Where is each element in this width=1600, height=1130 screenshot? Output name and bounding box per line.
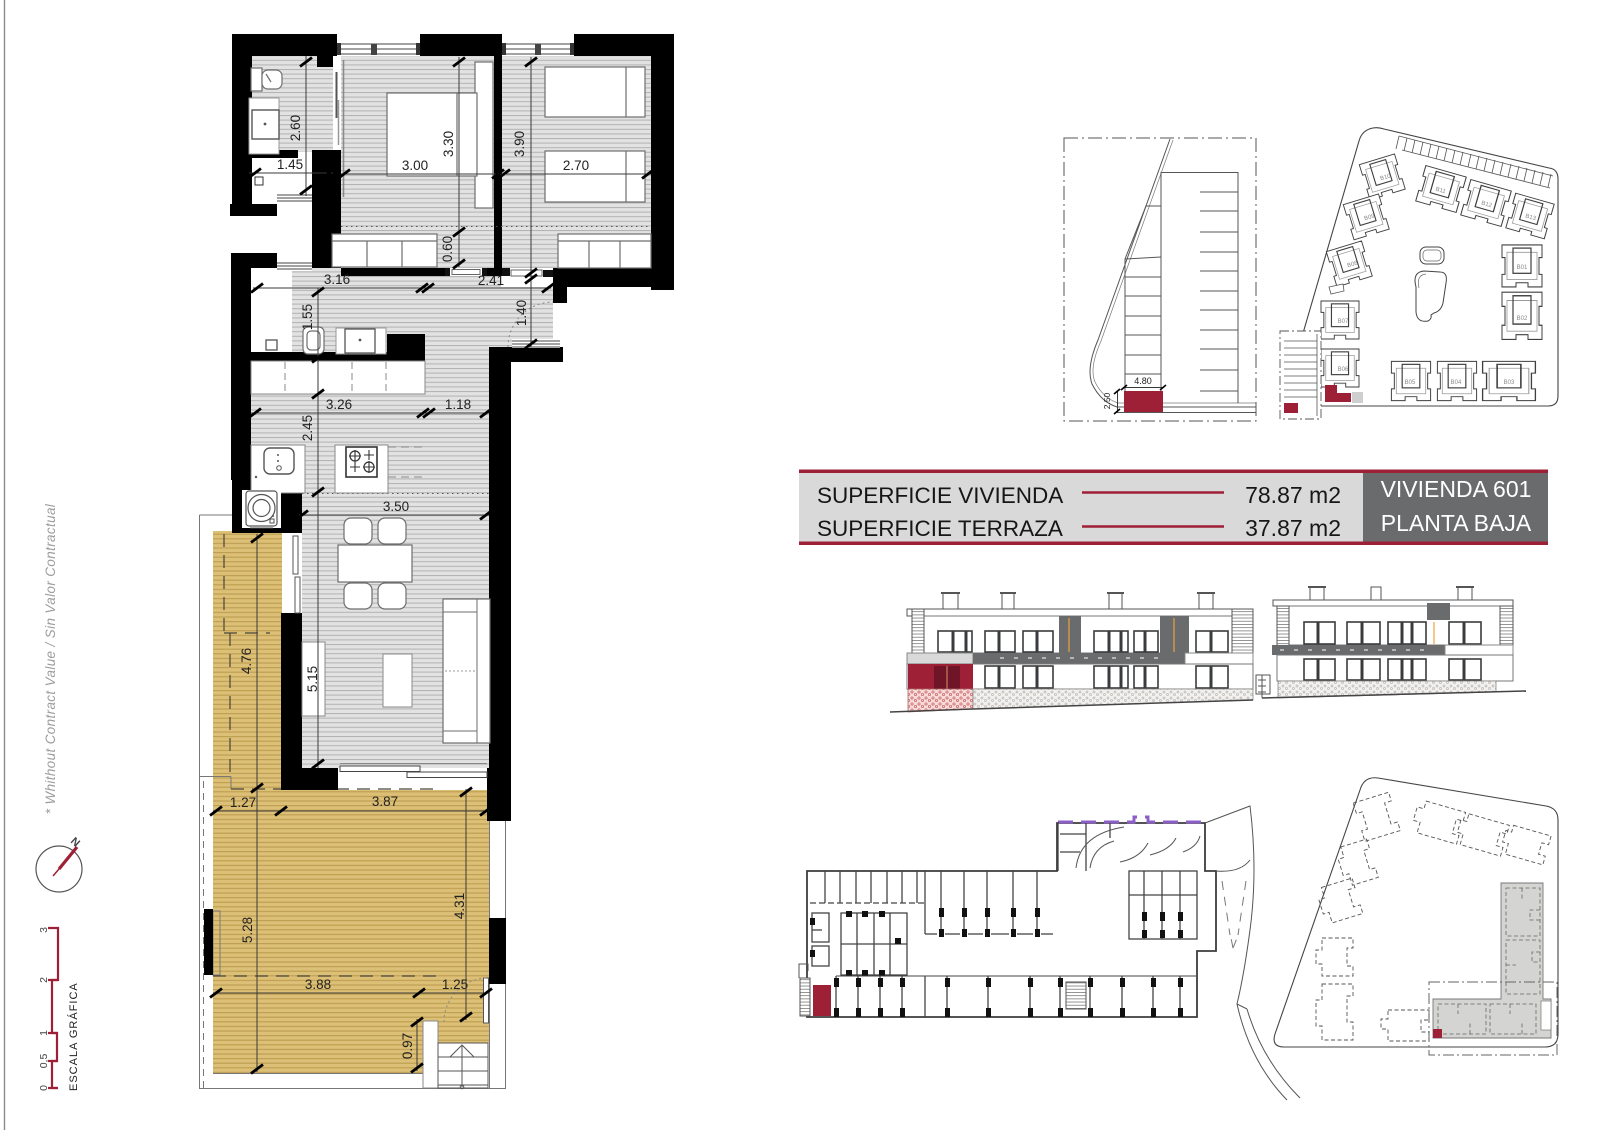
svg-text:1.40: 1.40 <box>514 300 529 326</box>
svg-text:1.18: 1.18 <box>445 397 471 412</box>
svg-text:2.70: 2.70 <box>563 158 589 173</box>
svg-text:2.50: 2.50 <box>1102 392 1112 409</box>
svg-text:1: 1 <box>38 1030 50 1036</box>
svg-text:B01: B01 <box>1517 265 1528 271</box>
svg-text:3.16: 3.16 <box>324 272 350 287</box>
svg-text:1.25: 1.25 <box>442 977 468 992</box>
svg-text:0.60: 0.60 <box>440 236 455 262</box>
svg-text:* Whithout Contract Value / Si: * Whithout Contract Value / Sin Valor Co… <box>43 503 58 814</box>
svg-text:0: 0 <box>38 1085 50 1091</box>
svg-text:3.90: 3.90 <box>512 131 527 157</box>
svg-text:3.30: 3.30 <box>441 131 456 157</box>
svg-text:3.00: 3.00 <box>402 158 428 173</box>
svg-text:3.50: 3.50 <box>383 499 409 514</box>
svg-text:3: 3 <box>38 927 50 933</box>
svg-text:PLANTA BAJA: PLANTA BAJA <box>1381 510 1532 536</box>
svg-text:SUPERFICIE VIVIENDA: SUPERFICIE VIVIENDA <box>817 483 1063 508</box>
svg-text:37.87 m2: 37.87 m2 <box>1245 515 1341 541</box>
svg-text:1.55: 1.55 <box>300 304 315 330</box>
svg-text:78.87 m2: 78.87 m2 <box>1245 482 1341 508</box>
svg-text:1.45: 1.45 <box>277 157 303 172</box>
svg-text:3.26: 3.26 <box>326 397 352 412</box>
svg-text:4.80: 4.80 <box>1134 376 1152 386</box>
svg-text:B07: B07 <box>1338 319 1349 325</box>
svg-text:2.60: 2.60 <box>288 115 303 141</box>
svg-text:4.76: 4.76 <box>239 648 254 674</box>
svg-text:2.41: 2.41 <box>478 273 504 288</box>
svg-text:2.45: 2.45 <box>300 415 315 441</box>
svg-text:0.97: 0.97 <box>400 1033 415 1059</box>
svg-text:B03: B03 <box>1504 380 1515 386</box>
svg-text:B04: B04 <box>1451 380 1462 386</box>
svg-text:2: 2 <box>38 977 50 983</box>
svg-text:3.88: 3.88 <box>305 977 331 992</box>
svg-text:ESCALA GRÁFICA: ESCALA GRÁFICA <box>67 982 80 1091</box>
svg-text:VIVIENDA 601: VIVIENDA 601 <box>1381 476 1532 502</box>
svg-text:5.15: 5.15 <box>305 666 320 692</box>
svg-text:4.31: 4.31 <box>452 893 467 919</box>
svg-text:B02: B02 <box>1517 316 1528 322</box>
svg-text:3.87: 3.87 <box>372 794 398 809</box>
svg-text:SUPERFICIE TERRAZA: SUPERFICIE TERRAZA <box>817 516 1063 541</box>
svg-text:B06: B06 <box>1338 367 1349 373</box>
svg-text:B05: B05 <box>1405 380 1416 386</box>
svg-text:5.28: 5.28 <box>240 917 255 943</box>
svg-text:1.27: 1.27 <box>230 795 256 810</box>
svg-text:0,5: 0,5 <box>38 1054 50 1069</box>
